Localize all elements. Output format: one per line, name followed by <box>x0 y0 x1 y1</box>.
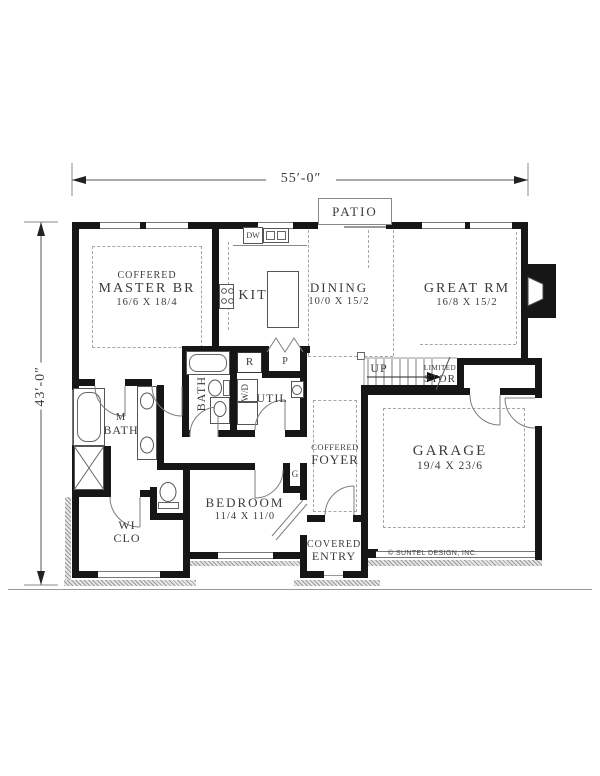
stairs-up-label: UP <box>366 362 392 375</box>
window-great-1 <box>422 222 465 229</box>
patio-slider-panel-2 <box>344 226 386 228</box>
stipple-bedroom-bottom <box>183 561 307 566</box>
master-shower <box>74 446 104 490</box>
range-cooktop <box>219 284 234 309</box>
window-bedroom <box>218 552 273 559</box>
stipple-wiclo-left <box>65 497 71 580</box>
wall-wiclo-bottom-b <box>160 571 190 578</box>
wall-garage-right-a <box>535 365 542 398</box>
room-label-kitchen: KIT <box>233 288 273 304</box>
fixture-label-dw: DW <box>243 227 263 244</box>
patio-box: PATIO <box>318 198 392 225</box>
fixture-label-pantry: P <box>274 356 296 367</box>
floor-plan: PATIO 55′-0″ 43′-0″ COFFERED MASTER BR 1… <box>0 0 600 776</box>
copyright-notice: © SUNTEL DESIGN, INC. <box>388 550 508 558</box>
bath-vanity <box>210 397 230 424</box>
patio-door-centerline <box>368 230 369 268</box>
wall-left-upper <box>72 222 79 390</box>
room-label-master: COFFERED MASTER BR 16/6 X 18/4 <box>86 270 208 309</box>
stair-newel <box>357 352 365 360</box>
wall-wiclo-top-a <box>72 490 110 497</box>
wall-wiclo-bottom-a <box>72 571 98 578</box>
fixture-label-fridge: R <box>237 352 262 373</box>
room-label-bedroom: BEDROOM 11/4 X 11/0 <box>189 496 301 522</box>
wall-wiclo-top-b <box>140 490 150 497</box>
stipple-garage-bottom <box>368 560 542 566</box>
window-master-1 <box>100 222 140 229</box>
wall-bedroom-top <box>157 463 255 470</box>
foyer-name: FOYER <box>308 453 362 468</box>
wall-great-bottom <box>457 358 542 365</box>
kitchen-sink-basin-2 <box>277 231 286 240</box>
wall-master-kitchen <box>212 229 219 353</box>
master-size: 16/6 X 18/4 <box>86 297 208 309</box>
great-room-ceiling-v <box>516 232 517 344</box>
room-label-entry: COVERED ENTRY <box>307 539 361 564</box>
wall-entry-bottom-a <box>300 571 324 578</box>
wall-bedroom-bottom-b <box>273 552 307 559</box>
wc-toilet-tank <box>158 502 179 509</box>
fireplace-mass <box>527 264 556 318</box>
wall-bath-right <box>230 346 237 437</box>
counter-edge <box>233 245 307 246</box>
dining-ceiling-edge <box>308 356 393 357</box>
wiclo-line1: WI <box>103 519 151 532</box>
wall-garage-top-a <box>368 388 470 395</box>
room-label-util: UTIL <box>250 392 294 405</box>
dimension-height: 43′-0″ <box>33 363 49 410</box>
great-room-ceiling-h <box>420 344 516 345</box>
master-ceiling-note: COFFERED <box>86 270 208 281</box>
room-label-mbath: M BATH <box>98 412 144 437</box>
dining-great-break <box>393 230 394 356</box>
window-great-2 <box>470 222 512 229</box>
wall-hall-top-c <box>285 430 307 437</box>
patio-label: PATIO <box>332 204 378 219</box>
entry-opening-line <box>324 575 343 576</box>
bedroom-name: BEDROOM <box>189 496 301 511</box>
mbath-line1: M <box>98 412 144 424</box>
fixture-label-wd: W/D <box>240 384 250 402</box>
great-name: GREAT RM <box>419 281 515 297</box>
room-label-great: GREAT RM 16/8 X 15/2 <box>419 281 515 308</box>
great-size: 16/8 X 15/2 <box>419 297 515 309</box>
stor-line1: LIMITED <box>420 365 460 373</box>
garage-size: 19/4 X 23/6 <box>400 460 500 473</box>
ground-line <box>8 589 592 590</box>
wall-foyer-right <box>361 385 368 578</box>
stor-line2: STOR <box>420 373 460 385</box>
dimension-width: 55′-0″ <box>266 171 336 187</box>
wall-garage-right-b <box>535 426 542 560</box>
stipple-entry-bottom <box>294 580 380 586</box>
master-name: MASTER BR <box>86 281 208 297</box>
entry-line2: ENTRY <box>307 550 361 563</box>
stairs-storage-label: LIMITED STOR <box>420 365 460 385</box>
wall-entry-bottom-b <box>343 571 368 578</box>
dining-size: 10/0 X 15/2 <box>302 296 376 308</box>
bath-toilet-tank <box>223 380 230 396</box>
wall-bedroom-bottom-a <box>183 552 218 559</box>
garage-name: GARAGE <box>400 443 500 460</box>
wall-front-door-a <box>307 515 325 522</box>
closet-label-g: G <box>286 469 304 479</box>
mbath-line2: BATH <box>98 424 144 437</box>
window-wiclo <box>98 571 160 578</box>
wall-hall-top-a <box>182 430 190 437</box>
wall-master-bottom-b <box>125 379 152 386</box>
stipple-wiclo-bottom <box>64 580 196 586</box>
dryer-box <box>237 402 258 425</box>
wall-mbath-right <box>157 385 164 463</box>
wall-top-d <box>293 222 318 229</box>
room-label-dining: DINING 10/0 X 15/2 <box>302 281 376 307</box>
kitchen-sink-basin-1 <box>266 231 275 240</box>
window-master-2 <box>146 222 188 229</box>
room-label-bath: BATH <box>195 376 208 411</box>
bedroom-size: 11/4 X 11/0 <box>189 511 301 523</box>
room-label-foyer: COFFERED FOYER <box>308 443 362 467</box>
wall-front-door-b <box>353 515 361 522</box>
wall-hall-top-b <box>218 430 255 437</box>
room-label-garage: GARAGE 19/4 X 23/6 <box>400 443 500 473</box>
room-label-wiclo: WI CLO <box>103 519 151 546</box>
wiclo-line2: CLO <box>103 532 151 545</box>
dining-name: DINING <box>302 281 376 296</box>
wall-master-bottom-a <box>79 379 95 386</box>
bath-tub-basin <box>189 354 227 372</box>
wall-garage-top-b <box>500 388 535 395</box>
